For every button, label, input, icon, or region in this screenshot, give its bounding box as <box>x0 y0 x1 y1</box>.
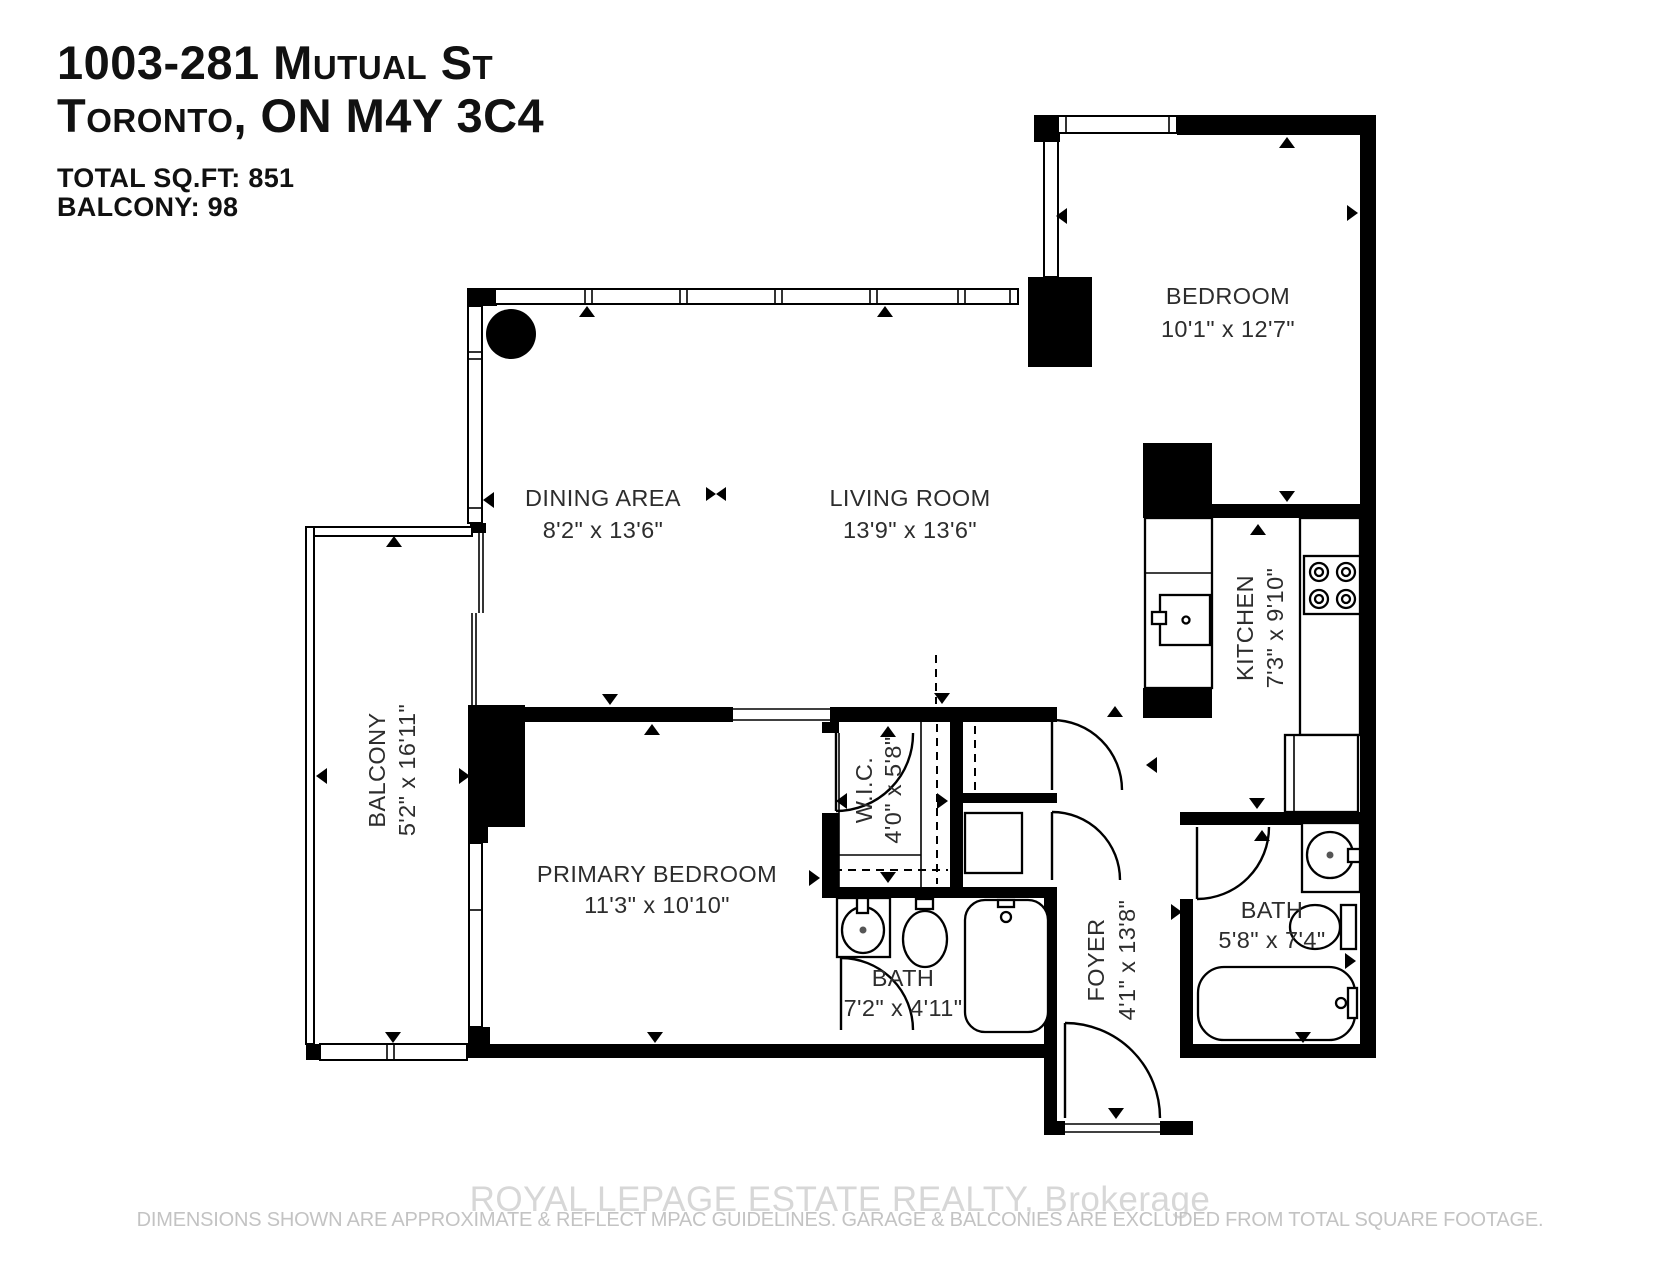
kitchen-counter-sink <box>1145 518 1212 688</box>
ensuite-sink <box>837 898 890 957</box>
address-line-2: Toronto, ON M4Y 3C4 <box>57 89 544 142</box>
dims-bath-ensuite: 7'2" x 4'11" <box>844 995 963 1021</box>
dimension-marker <box>706 487 726 501</box>
kitchen-stove <box>1300 518 1360 735</box>
ensuite-toilet <box>903 899 947 967</box>
dims-bedroom: 10'1" x 12'7" <box>1161 316 1295 342</box>
label-bedroom: BEDROOM <box>1166 283 1290 309</box>
disclaimer-text: DIMENSIONS SHOWN ARE APPROXIMATE & REFLE… <box>0 1209 1680 1232</box>
dims-foyer: 4'1" x 13'8" <box>1114 900 1140 1021</box>
dims-bath-main: 5'8" x 7'4" <box>1218 927 1325 953</box>
address-line-1: 1003-281 Mutual St <box>57 36 544 89</box>
label-primary-bedroom: PRIMARY BEDROOM <box>537 861 777 887</box>
total-sqft-label: TOTAL SQ.FT: 851 <box>57 164 544 193</box>
closet-box <box>965 813 1022 873</box>
label-dining: DINING AREA <box>525 485 681 511</box>
dims-wic: 4'0" x 5'8" <box>880 736 906 843</box>
label-bath-main: BATH <box>1241 897 1304 923</box>
dims-kitchen: 7'3" x 9'10" <box>1262 568 1288 689</box>
label-bath-ensuite: BATH <box>872 965 935 991</box>
dims-dining: 8'2" x 13'6" <box>543 517 664 543</box>
label-wic: W.I.C. <box>851 757 877 823</box>
floorplan-page: 1003-281 Mutual St Toronto, ON M4Y 3C4 T… <box>0 0 1680 1260</box>
balcony-sqft-label: BALCONY: 98 <box>57 193 544 222</box>
ensuite-tub <box>965 900 1048 1032</box>
label-living: LIVING ROOM <box>829 485 990 511</box>
title-block: 1003-281 Mutual St Toronto, ON M4Y 3C4 T… <box>57 36 544 222</box>
bath-sink <box>1302 823 1360 892</box>
label-kitchen: KITCHEN <box>1232 575 1258 681</box>
dims-living: 13'9" x 13'6" <box>843 517 977 543</box>
fridge <box>1285 735 1358 812</box>
dims-primary-bedroom: 11'3" x 10'10" <box>584 892 730 918</box>
dims-balcony: 5'2" x 16'11" <box>394 704 420 836</box>
column <box>486 309 536 359</box>
label-foyer: FOYER <box>1083 919 1109 1002</box>
bath-tub <box>1198 967 1357 1040</box>
label-balcony: BALCONY <box>364 712 390 827</box>
